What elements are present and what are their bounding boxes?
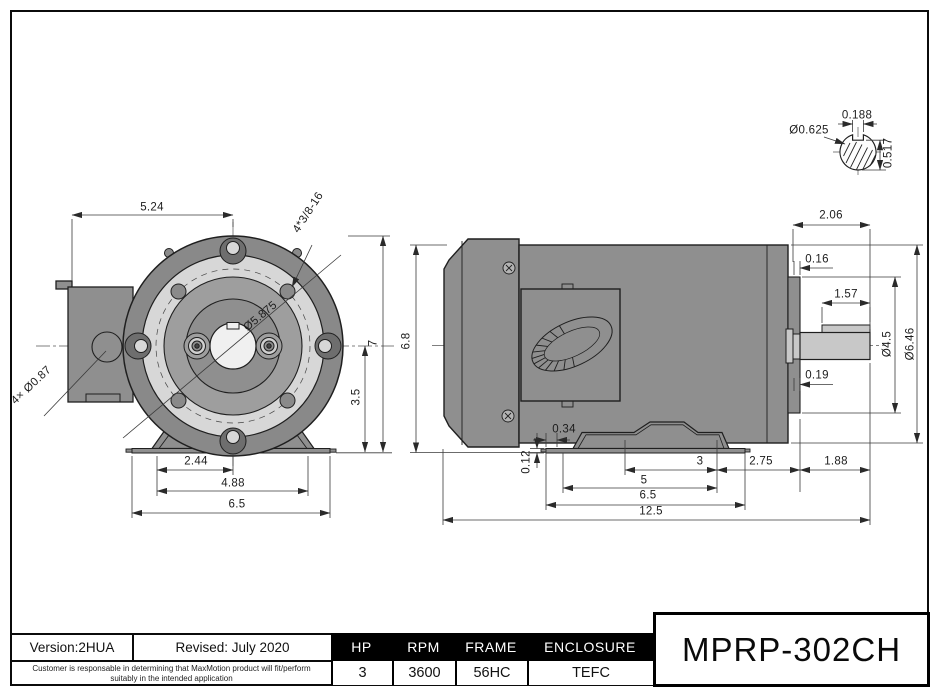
- dim-front-foot-span: 4.88: [221, 478, 245, 490]
- spec-value-rpm: 3600: [392, 661, 455, 685]
- conduit-box: [56, 281, 133, 402]
- revised-cell: Revised: July 2020: [134, 635, 331, 660]
- dim-section-flat: 0.517: [883, 138, 895, 168]
- dim-side-overall-length: 12.5: [639, 506, 663, 518]
- disclaimer: Customer is responsable in determining t…: [12, 662, 331, 684]
- model-number: MPRP-302CH: [682, 631, 901, 669]
- spec-header-band: HP RPM FRAME ENCLOSURE: [331, 633, 653, 661]
- dim-side-foot-to-flange: 2.75: [749, 456, 773, 468]
- spec-value-hp: 3: [331, 661, 392, 685]
- version-label: Version:2HUA: [30, 640, 115, 655]
- disclaimer-line-1: Customer is responsable in determining t…: [12, 664, 331, 674]
- version-cell: Version:2HUA: [12, 635, 132, 660]
- spec-header-frame: FRAME: [455, 633, 527, 661]
- dim-side-body-dia: Ø6.46: [905, 328, 917, 361]
- dim-side-base-length: 6.5: [640, 490, 657, 502]
- dim-front-flange-width: 5.24: [140, 202, 164, 214]
- dim-front-shaft-height: 3.5: [351, 389, 363, 406]
- dim-side-key-length: 1.57: [834, 289, 858, 301]
- front-view: [36, 222, 394, 468]
- dim-front-overall-height: 7: [368, 340, 380, 347]
- revised-label: Revised: July 2020: [175, 640, 289, 655]
- dim-side-foot-span-outer: 5: [641, 475, 648, 487]
- spec-header-enclosure: ENCLOSURE: [527, 633, 653, 661]
- dim-side-slinger: 0.19: [805, 370, 829, 382]
- nameplate: [521, 284, 620, 407]
- dim-side-flange-step: 0.16: [805, 254, 829, 266]
- shaft-key: [822, 325, 870, 333]
- spec-header-rpm: RPM: [392, 633, 455, 661]
- keyway-front: [227, 323, 239, 330]
- disclaimer-line-2: suitably in the intended application: [12, 674, 331, 684]
- dim-front-foot-half: 2.44: [184, 456, 208, 468]
- spec-header-hp: HP: [331, 633, 392, 661]
- spec-values-row: 3 3600 56HC TEFC: [331, 661, 653, 685]
- motor-drawing-graphics: [0, 0, 938, 692]
- spec-value-enclosure: TEFC: [527, 661, 653, 685]
- dim-side-base-lip: 0.34: [552, 424, 576, 436]
- side-view: [432, 239, 886, 453]
- dim-side-frame-height: 6.8: [401, 333, 413, 350]
- dim-front-base-width: 6.5: [229, 499, 246, 511]
- dim-side-flange-dia: Ø4.5: [882, 331, 894, 357]
- dim-side-foot-span-inner: 3: [697, 456, 704, 468]
- dim-section-shaft-dia: Ø0.625: [789, 125, 829, 137]
- dim-side-shaft-extension: 2.06: [819, 210, 843, 222]
- engineering-drawing-page: 5.24 4*3/8-16 Ø5.875 4× Ø0.87 7 3.5 2.44…: [0, 0, 938, 692]
- dim-side-base-thickness: 0.12: [521, 450, 533, 474]
- dim-side-flange-to-shaft-end: 1.88: [824, 456, 848, 468]
- shaft-section-detail: [824, 120, 886, 177]
- model-number-box: MPRP-302CH: [653, 612, 930, 687]
- dim-section-keyway-width: 0.188: [842, 110, 872, 122]
- spec-value-frame: 56HC: [455, 661, 527, 685]
